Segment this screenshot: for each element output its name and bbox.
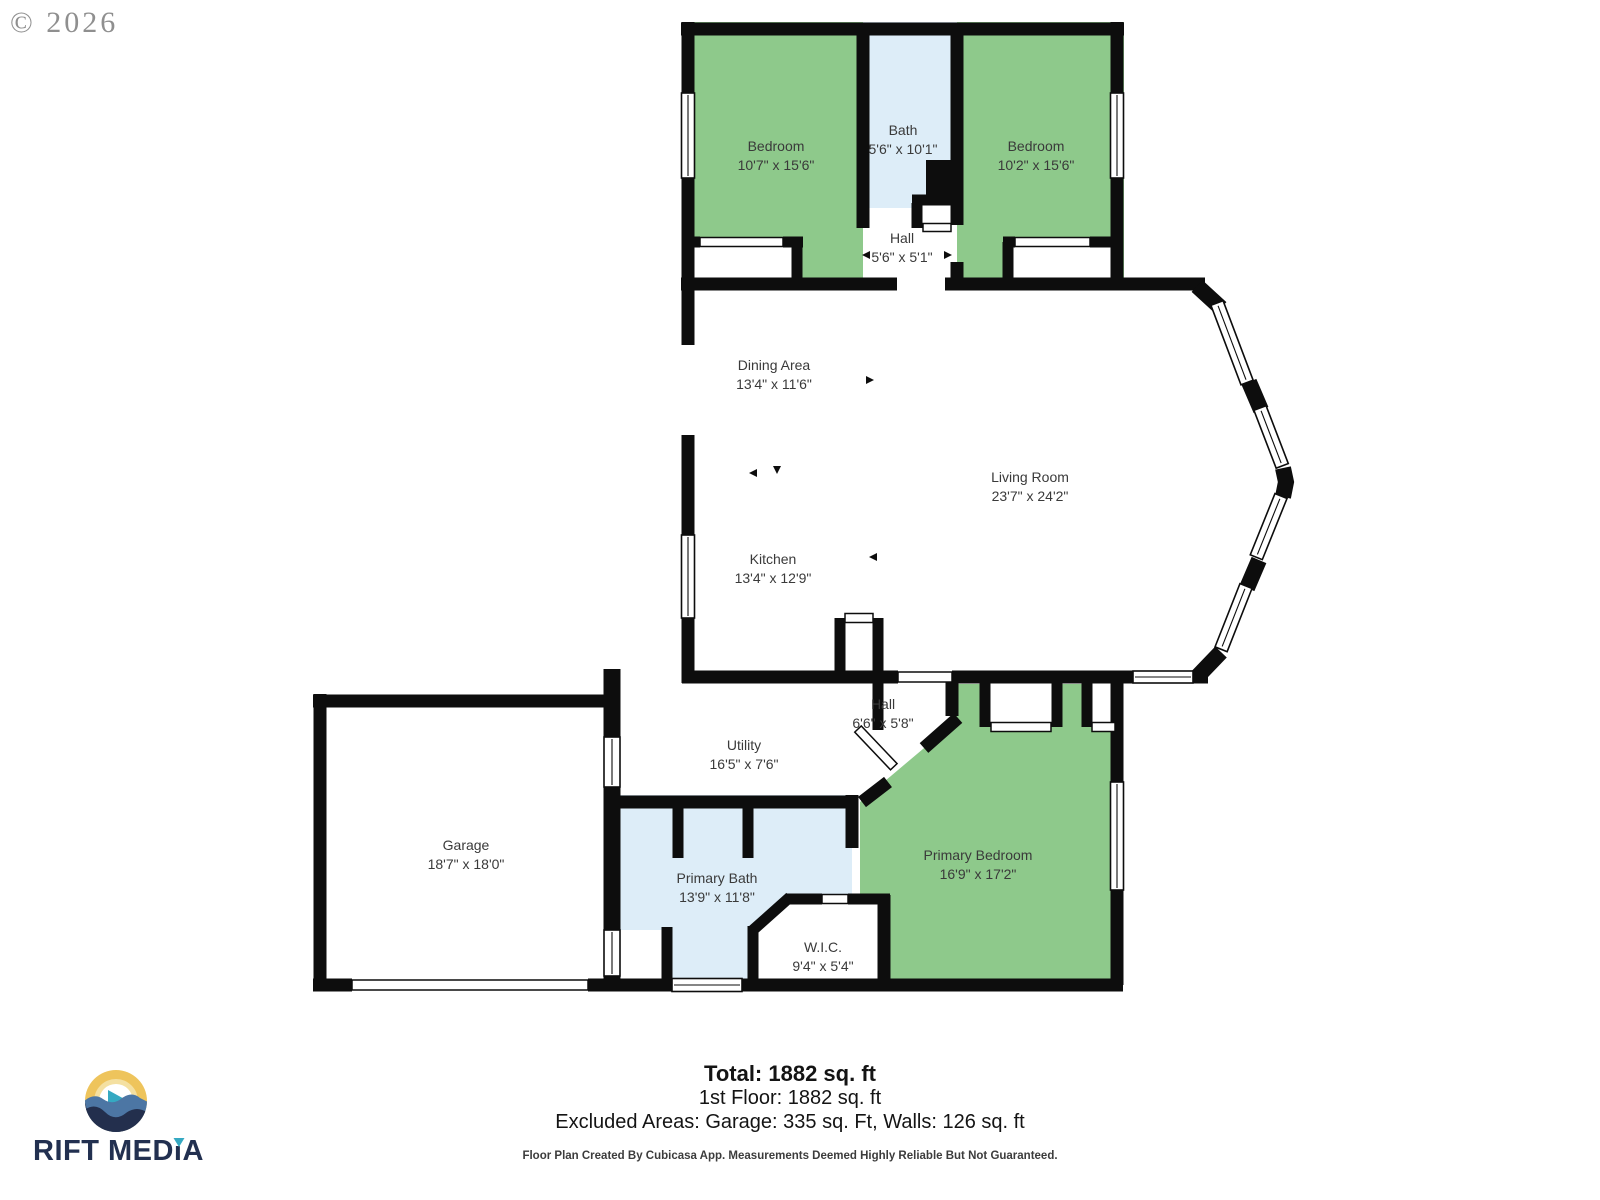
- primary-bedroom-window: [1111, 782, 1124, 890]
- room-label-primary-bedroom: Primary Bedroom16'9" x 17'2": [924, 846, 1033, 884]
- living-slider-window: [1133, 671, 1193, 683]
- room-label-bath: Bath5'6" x 10'1": [869, 121, 938, 159]
- kitchen-closet-floor: [845, 618, 873, 677]
- bay-window-3: [1250, 494, 1287, 560]
- primary-closet-left-floor: [985, 683, 1057, 727]
- bay-window-1: [1211, 301, 1253, 385]
- room-label-hall-lower: Hall6'6" x 5'8": [852, 695, 913, 733]
- first-floor-area: 1st Floor: 1882 sq. ft: [522, 1086, 1057, 1110]
- room-label-primary-bath: Primary Bath13'9" x 11'8": [677, 869, 758, 907]
- primary-bath-left-window: [604, 930, 620, 976]
- walls-bay-corners: [1197, 286, 1286, 677]
- bedroom-right-closet-floor: [1013, 246, 1113, 278]
- bath-shower-wall: [926, 160, 952, 202]
- bedroom-left-closet-door: [700, 238, 783, 247]
- room-label-bedroom-left: Bedroom10'7" x 15'6": [738, 137, 815, 175]
- utility-window: [604, 737, 620, 787]
- bedroom-right-closet-door: [1015, 238, 1090, 247]
- rift-media-logo: RIFT MEDiA: [33, 1070, 204, 1167]
- excluded-areas: Excluded Areas: Garage: 335 sq. Ft, Wall…: [522, 1110, 1057, 1134]
- wic-door: [822, 895, 848, 904]
- floorplan-page: © 2026: [0, 0, 1600, 1200]
- primary-bath-bottom-window: [672, 979, 742, 992]
- bedroom-right-window: [1111, 93, 1124, 178]
- kitchen-closet-door: [845, 614, 873, 623]
- room-label-utility: Utility16'5" x 7'6": [710, 736, 779, 774]
- bedroom-left-closet-floor: [693, 246, 792, 278]
- area-summary: Total: 1882 sq. ft 1st Floor: 1882 sq. f…: [522, 1062, 1057, 1162]
- room-label-dining-area: Dining Area13'4" x 11'6": [736, 356, 812, 394]
- room-label-living-room: Living Room23'7" x 24'2": [991, 468, 1069, 506]
- room-label-bedroom-right: Bedroom10'2" x 15'6": [998, 137, 1075, 175]
- room-label-wic: W.I.C.9'4" x 5'4": [792, 938, 853, 976]
- primary-closet-left-door: [991, 723, 1051, 732]
- bay-window-2: [1254, 406, 1288, 469]
- hall-door: [898, 672, 952, 682]
- total-area: Total: 1882 sq. ft: [522, 1062, 1057, 1086]
- bay-window-4: [1215, 584, 1252, 652]
- room-label-garage: Garage18'7" x 18'0": [428, 836, 505, 874]
- kitchen-window: [682, 535, 695, 618]
- room-label-hall-upper: Hall5'6" x 5'1": [871, 229, 932, 267]
- dimension-ticks: [749, 251, 952, 561]
- bedroom-left-window: [682, 93, 695, 178]
- room-label-kitchen: Kitchen13'4" x 12'9": [735, 550, 812, 588]
- disclaimer: Floor Plan Created By Cubicasa App. Meas…: [522, 1150, 1057, 1162]
- primary-closet-right-door: [1092, 723, 1115, 732]
- floorplan-drawing: RIFT MEDiA: [0, 0, 1600, 1200]
- garage-door: [352, 980, 588, 990]
- bath-alcove-floor: [615, 930, 663, 985]
